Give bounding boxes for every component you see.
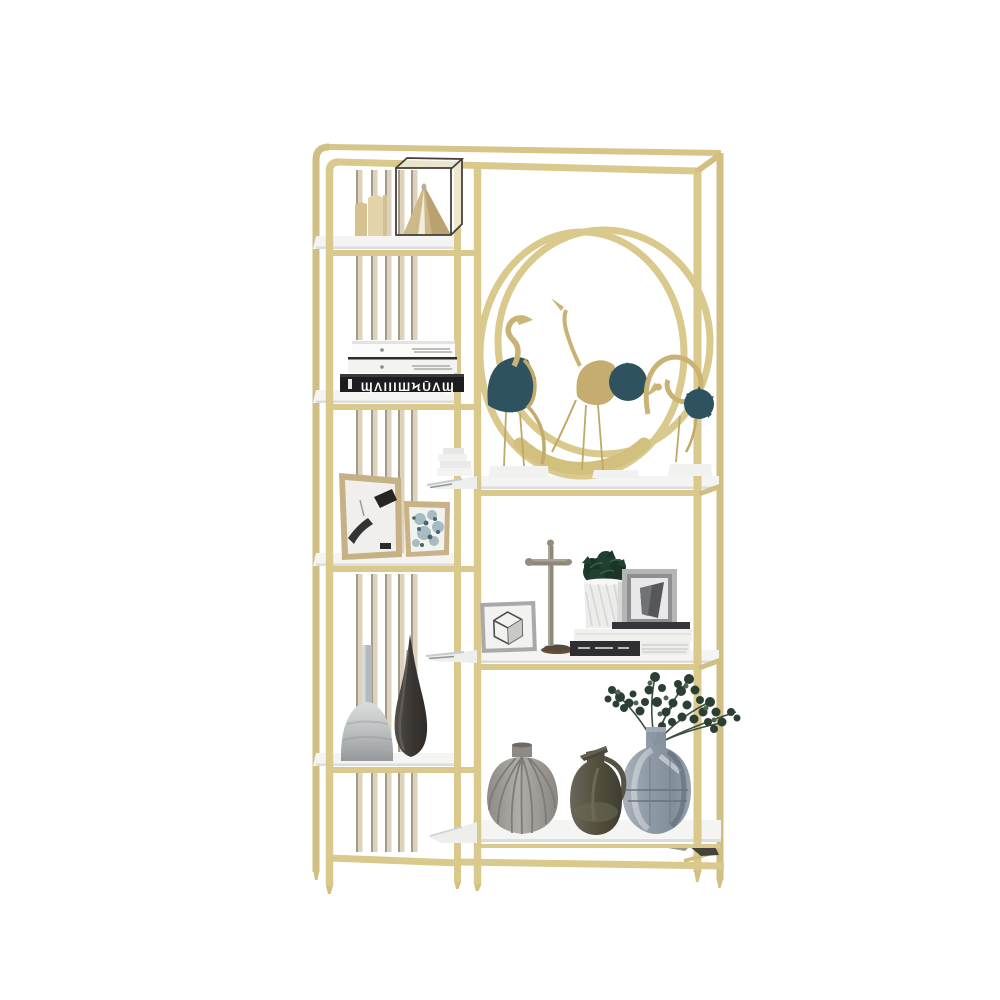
svg-text:ϢΛΙΙΙШϞŪΛϢ: ϢΛΙΙΙШϞŪΛϢ: [361, 380, 456, 394]
